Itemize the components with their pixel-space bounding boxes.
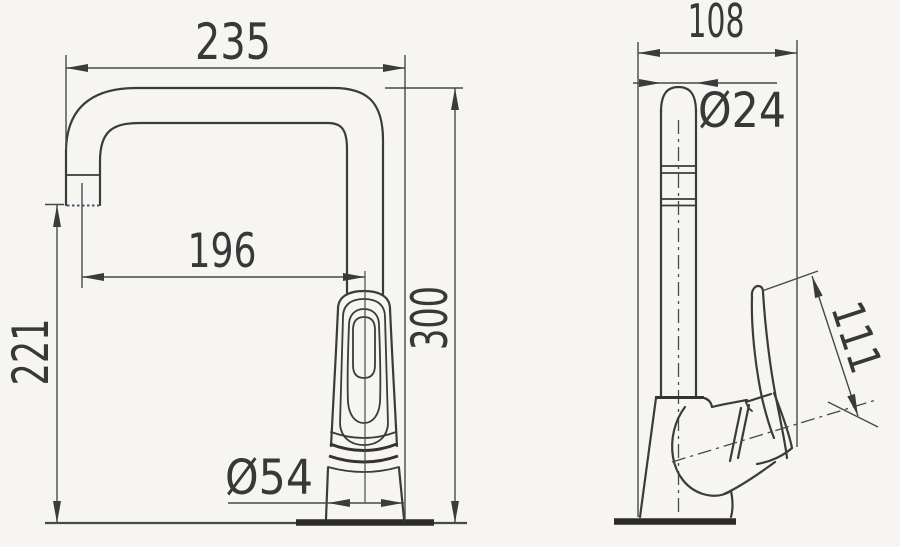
cap-top-edge (746, 394, 771, 402)
dim-111-ext-top (762, 271, 818, 291)
dim-tube-diameter: Ø24 (633, 79, 786, 139)
dim-base-diameter: Ø54 (225, 450, 404, 507)
dim-54-text: Ø54 (225, 450, 313, 506)
base-left-edge (326, 468, 328, 519)
dim-235-arrow-right (383, 64, 405, 72)
lever-blade-tip (752, 286, 763, 297)
collar-ring-3 (329, 456, 398, 462)
side-body-step (704, 398, 712, 407)
dim-spout-reach: 196 (82, 183, 365, 288)
dim-24-text: Ø24 (698, 83, 786, 139)
foot-right-edge (731, 491, 733, 517)
handle-axis-centerline (672, 400, 876, 462)
valve-top-edge (712, 400, 747, 407)
dimensions: 235 196 221 300 (2, 0, 891, 523)
dim-111-arrow-top (808, 275, 822, 298)
dim-54-arrow-right (381, 499, 403, 507)
tube-dome-cap (661, 87, 696, 112)
dim-235-arrow-left (66, 64, 88, 72)
dim-54-arrow-left (328, 499, 350, 507)
faucet-technical-drawing: 235 196 221 300 (0, 0, 900, 547)
dim-108-text: 108 (688, 0, 745, 48)
drawing-sheet: 235 196 221 300 (0, 0, 900, 547)
dim-111-text: 111 (820, 295, 891, 379)
dim-handle-length: 111 (762, 271, 891, 427)
dim-300-text: 300 (401, 286, 459, 350)
ball-joint-arc (672, 407, 731, 496)
dim-24-arrow-left (639, 79, 661, 87)
lever-top-capsule (353, 317, 375, 378)
collar-ring-4 (328, 467, 399, 472)
side-view (614, 87, 876, 522)
lever-blade-right-edge (763, 292, 787, 458)
dim-221-arrow-bottom (53, 501, 61, 523)
dim-235-text: 235 (195, 13, 271, 71)
dim-outlet-height: 221 (2, 205, 64, 524)
dim-221-arrow-top (53, 205, 61, 227)
dim-221-text: 221 (2, 319, 60, 386)
dim-196-arrow-right (343, 273, 365, 281)
dim-196-arrow-left (82, 273, 104, 281)
dim-300-arrow-top (451, 88, 459, 110)
side-body-left-edge (640, 398, 656, 517)
dim-108-arrow-right (775, 49, 797, 57)
dim-196-text: 196 (188, 224, 257, 279)
dim-108-arrow-left (638, 49, 660, 57)
base-right-edge (399, 468, 404, 519)
valve-bottom-edge (724, 462, 775, 494)
dim-300-arrow-bottom (451, 501, 459, 523)
